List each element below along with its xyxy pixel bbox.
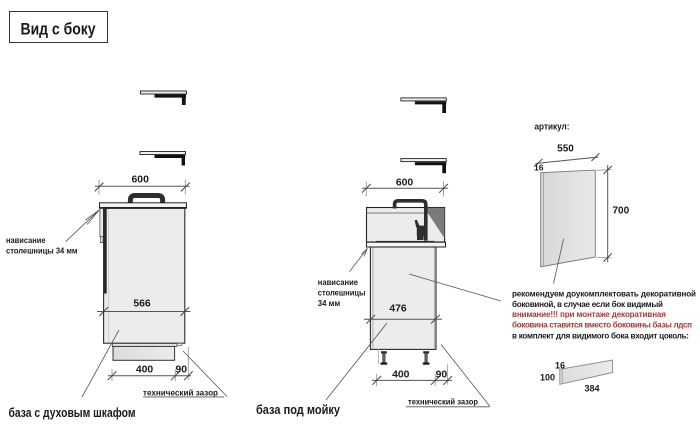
svg-text:внимание!!! при монтаже декора: внимание!!! при монтаже декоративная bbox=[512, 310, 666, 319]
svg-text:476: 476 bbox=[389, 304, 407, 315]
svg-text:600: 600 bbox=[132, 175, 150, 186]
svg-text:700: 700 bbox=[613, 206, 630, 217]
svg-text:в комплект для видимого бока в: в комплект для видимого бока входит цоко… bbox=[512, 332, 689, 341]
svg-text:столешницы: столешницы bbox=[318, 288, 366, 298]
svg-text:550: 550 bbox=[557, 144, 574, 155]
svg-text:артикул:: артикул: bbox=[535, 122, 570, 132]
svg-text:база с духовым шкафом: база с духовым шкафом bbox=[9, 405, 136, 420]
svg-text:384: 384 bbox=[584, 384, 599, 394]
svg-text:90: 90 bbox=[436, 369, 448, 380]
svg-text:столешницы 34 мм: столешницы 34 мм bbox=[6, 246, 78, 256]
svg-text:400: 400 bbox=[136, 365, 154, 376]
svg-text:16: 16 bbox=[534, 163, 544, 173]
svg-text:600: 600 bbox=[396, 177, 414, 188]
svg-text:боковина ставится вместо боков: боковина ставится вместо боковины базы л… bbox=[512, 320, 692, 329]
svg-text:нависание: нависание bbox=[318, 277, 358, 287]
svg-text:100: 100 bbox=[540, 373, 555, 383]
svg-text:технический зазор: технический зазор bbox=[143, 387, 218, 397]
svg-text:400: 400 bbox=[392, 369, 410, 380]
svg-text:34 мм: 34 мм bbox=[318, 298, 340, 308]
svg-text:рекомендуем доукомплектовать д: рекомендуем доукомплектовать декоративно… bbox=[512, 290, 696, 299]
svg-text:566: 566 bbox=[133, 299, 151, 310]
svg-text:база под мойку: база под мойку bbox=[256, 402, 341, 417]
svg-text:боковиной, в случае если бок в: боковиной, в случае если бок видимый bbox=[512, 300, 663, 309]
svg-text:нависание: нависание bbox=[6, 235, 46, 245]
svg-text:16: 16 bbox=[555, 360, 565, 370]
svg-text:90: 90 bbox=[176, 365, 188, 376]
svg-text:Вид с боку: Вид с боку bbox=[21, 21, 97, 39]
svg-text:технический зазор: технический зазор bbox=[408, 396, 478, 406]
